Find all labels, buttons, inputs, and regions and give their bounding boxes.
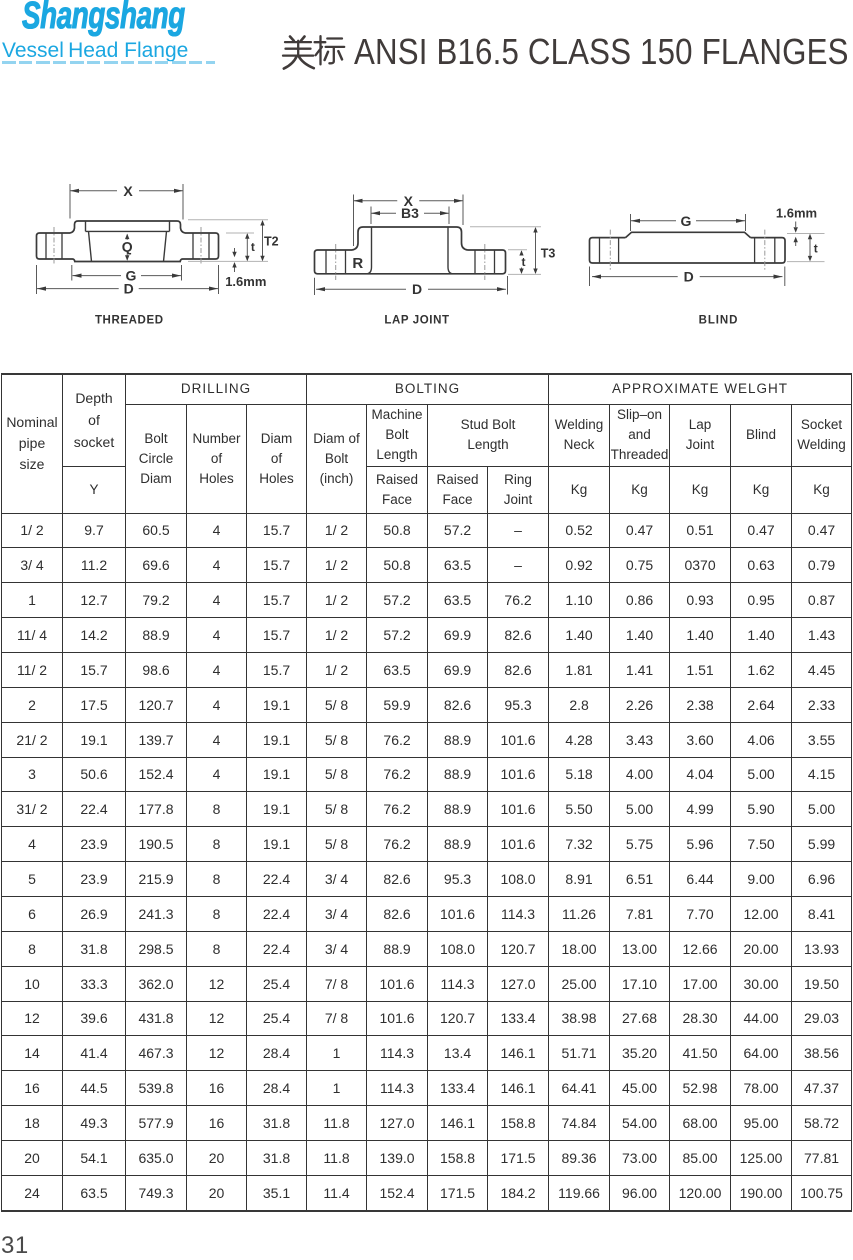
svg-text:D: D (412, 281, 422, 297)
svg-text:LAP JOINT: LAP JOINT (384, 315, 449, 327)
svg-text:T2: T2 (264, 235, 279, 249)
svg-text:D: D (684, 269, 694, 285)
svg-text:t: t (522, 255, 526, 269)
svg-text:B3: B3 (401, 205, 419, 221)
svg-text:BLIND: BLIND (699, 315, 739, 327)
svg-text:1.6mm: 1.6mm (225, 274, 266, 289)
svg-text:THREADED: THREADED (95, 315, 164, 327)
svg-text:T3: T3 (541, 247, 556, 261)
svg-text:Q: Q (122, 239, 133, 255)
svg-text:t: t (814, 241, 818, 255)
svg-text:G: G (681, 213, 692, 229)
svg-text:X: X (123, 183, 133, 199)
svg-text:t: t (251, 240, 255, 254)
svg-text:D: D (124, 281, 134, 297)
svg-text:R: R (352, 255, 363, 272)
svg-text:1.6mm: 1.6mm (776, 206, 817, 221)
